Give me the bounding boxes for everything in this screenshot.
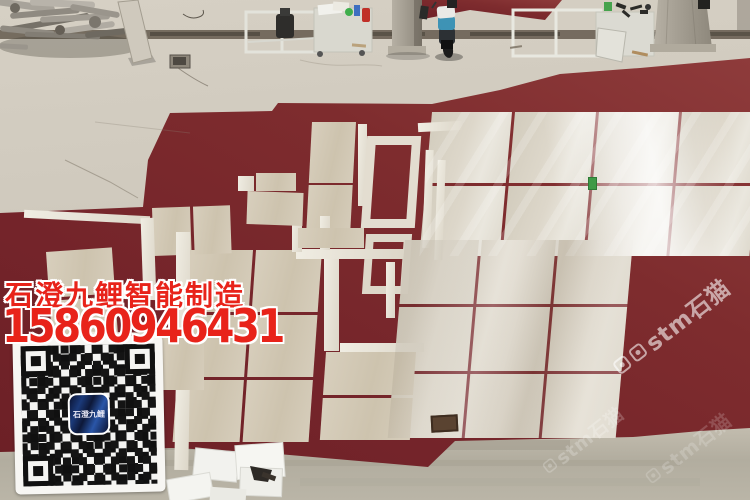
marble-tile [320, 398, 413, 441]
marble-tile [465, 374, 545, 438]
marble-tile [192, 205, 231, 254]
fire-extinguisher [362, 8, 370, 22]
strip-frame-1 [361, 136, 421, 228]
tile-grid-center-right [388, 240, 633, 438]
marble-tile [476, 240, 556, 304]
marble-tile [592, 112, 678, 183]
marble-tile [242, 380, 313, 442]
marble-strip [386, 262, 395, 318]
work-table-1 [246, 1, 372, 57]
phone-number-text: 15860946431 [2, 299, 283, 353]
marble-strip [340, 343, 424, 352]
qr-finder-bottom-left [23, 456, 54, 487]
green-sticker [588, 177, 597, 190]
marble-tile [323, 352, 416, 395]
floor-wire [183, 10, 204, 18]
marble-tile [676, 112, 750, 183]
marble-strip [324, 255, 339, 351]
marble-tile [298, 228, 364, 248]
floor-drain [170, 55, 208, 86]
social-app-icon-2 [627, 342, 648, 363]
factory-floor-photo: 石澄九鲤 石澄九鲤智能制造 15860946431 stm石猫 stm石猫 st… [0, 0, 750, 500]
marble-strip [296, 249, 404, 259]
qr-logo-text: 石澄九鲤 [73, 408, 105, 420]
tile-patch-below-frame [320, 352, 416, 440]
marble-tile [471, 307, 551, 371]
drill-machine [276, 14, 294, 38]
marble-tile [309, 122, 356, 183]
brown-stone-piece [431, 414, 459, 432]
marble-strip [174, 388, 189, 470]
marble-tile [246, 191, 303, 226]
qr-code: 石澄九鲤 [12, 335, 165, 494]
blue-bottle [354, 5, 360, 16]
concrete-pillar-2 [650, 0, 716, 52]
wall-edge [737, 0, 750, 30]
green-bottle [345, 8, 353, 16]
qr-modules: 石澄九鲤 [21, 344, 158, 487]
marble-tile [509, 112, 595, 183]
marble-tile [256, 173, 296, 191]
qr-center-logo: 石澄九鲤 [68, 393, 111, 436]
marble-tile [669, 186, 750, 257]
marble-tile [553, 240, 633, 304]
tile-grid-top-right [419, 112, 750, 256]
green-cup [604, 2, 612, 11]
tile-patch-left [152, 205, 232, 256]
tools [616, 2, 627, 9]
marble-strip [238, 176, 254, 191]
open-cabinet-door [596, 28, 626, 62]
